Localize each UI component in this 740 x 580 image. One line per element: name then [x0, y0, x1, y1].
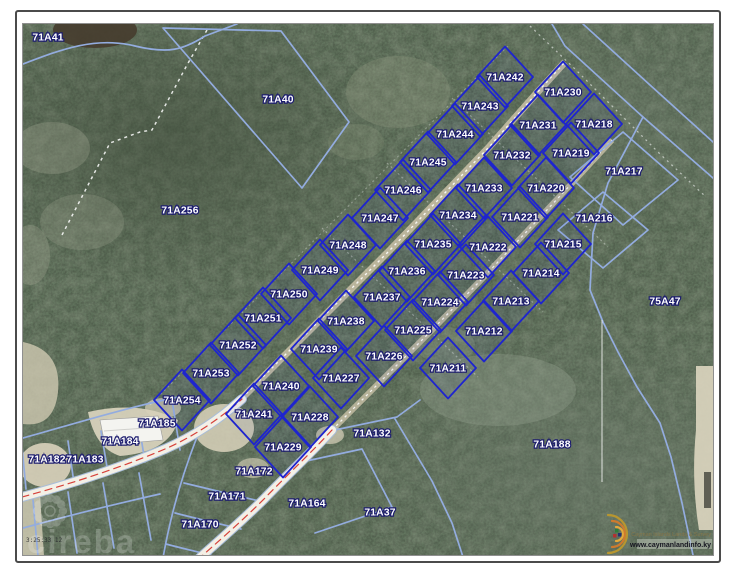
parcel-label-71A223: 71A223 — [447, 271, 484, 282]
parcel-label-71A252: 71A252 — [219, 341, 256, 352]
context-parcel-label-71A182: 71A182 — [28, 455, 65, 466]
context-parcel-label-71A37: 71A37 — [364, 508, 395, 519]
parcel-label-71A253: 71A253 — [192, 369, 229, 380]
parcel-label-71A250: 71A250 — [270, 290, 307, 301]
agency-name: Cayman Islands Lands & Survey — [631, 532, 711, 538]
parcel-label-71A211: 71A211 — [430, 364, 467, 375]
parcel-label-71A215: 71A215 — [544, 240, 581, 251]
parcel-label-71A243: 71A243 — [461, 102, 498, 113]
context-parcel-label-71A184: 71A184 — [101, 437, 138, 448]
parcel-label-71A218: 71A218 — [575, 120, 612, 131]
context-parcel-label-71A170: 71A170 — [181, 520, 218, 531]
context-parcel-label-71A188: 71A188 — [533, 440, 570, 451]
parcel-label-71A221: 71A221 — [501, 213, 538, 224]
context-parcel-label-71A185: 71A185 — [138, 419, 175, 430]
parcel-label-71A241: 71A241 — [235, 410, 272, 421]
parcel-label-71A249: 71A249 — [301, 266, 338, 277]
context-parcel-label-75A47: 75A47 — [649, 297, 680, 308]
parcel-label-71A237: 71A237 — [363, 293, 400, 304]
map-print-page: 71A4171A4071A25675A4771A21771A21671A1327… — [0, 0, 740, 580]
parcel-label-71A242: 71A242 — [486, 73, 523, 84]
parcel-label-71A235: 71A235 — [414, 240, 451, 251]
parcel-label-71A239: 71A239 — [300, 345, 337, 356]
flower-petal — [57, 500, 65, 508]
parcel-label-71A228: 71A228 — [291, 413, 328, 424]
agency-website[interactable]: www.caymanlandinfo.ky — [629, 542, 711, 549]
context-parcel-label-71A172: 71A172 — [235, 467, 272, 478]
parcel-label-71A238: 71A238 — [327, 317, 364, 328]
parcel-label-71A234: 71A234 — [439, 211, 476, 222]
parcel-label-71A236: 71A236 — [388, 267, 425, 278]
parcel-label-71A227: 71A227 — [322, 374, 359, 385]
parcel-label-71A225: 71A225 — [394, 326, 431, 337]
parcel-label-71A230: 71A230 — [544, 88, 581, 99]
context-parcel-label-71A183: 71A183 — [66, 455, 103, 466]
shore-structure — [704, 472, 711, 508]
parcel-label-71A247: 71A247 — [361, 214, 398, 225]
parcel-label-71A222: 71A222 — [469, 243, 506, 254]
parcel-label-71A219: 71A219 — [552, 149, 589, 160]
parcel-label-71A248: 71A248 — [329, 241, 366, 252]
parcel-label-71A233: 71A233 — [465, 184, 502, 195]
parcel-label-71A231: 71A231 — [519, 121, 556, 132]
parcel-label-71A232: 71A232 — [493, 151, 530, 162]
parcel-label-71A224: 71A224 — [421, 298, 458, 309]
parcel-label-71A214: 71A214 — [522, 269, 559, 280]
context-parcel-label-71A217: 71A217 — [605, 167, 642, 178]
parcel-label-71A240: 71A240 — [262, 382, 299, 393]
parcel-label-71A246: 71A246 — [384, 186, 421, 197]
context-parcel-label-71A41: 71A41 — [32, 33, 63, 44]
parcel-label-71A220: 71A220 — [527, 184, 564, 195]
parcel-label-71A229: 71A229 — [264, 443, 301, 454]
context-parcel-label-71A216: 71A216 — [575, 214, 612, 225]
parcel-label-71A226: 71A226 — [365, 352, 402, 363]
parcel-label-71A254: 71A254 — [163, 396, 200, 407]
context-parcel-label-71A132: 71A132 — [353, 429, 390, 440]
parcel-label-71A251: 71A251 — [244, 314, 281, 325]
parcel-label-71A245: 71A245 — [409, 158, 446, 169]
print-timestamp: 3:25:33 12 — [26, 537, 63, 544]
parcel-label-71A244: 71A244 — [436, 130, 473, 141]
context-parcel-label-71A164: 71A164 — [288, 499, 325, 510]
map-viewport[interactable]: 71A4171A4071A25675A4771A21771A21671A1327… — [23, 24, 713, 555]
context-parcel-label-71A171: 71A171 — [208, 492, 245, 503]
parcel-label-71A213: 71A213 — [492, 297, 529, 308]
context-parcel-label-71A256: 71A256 — [161, 206, 198, 217]
parcel-label-71A212: 71A212 — [465, 327, 502, 338]
context-parcel-label-71A40: 71A40 — [262, 95, 293, 106]
